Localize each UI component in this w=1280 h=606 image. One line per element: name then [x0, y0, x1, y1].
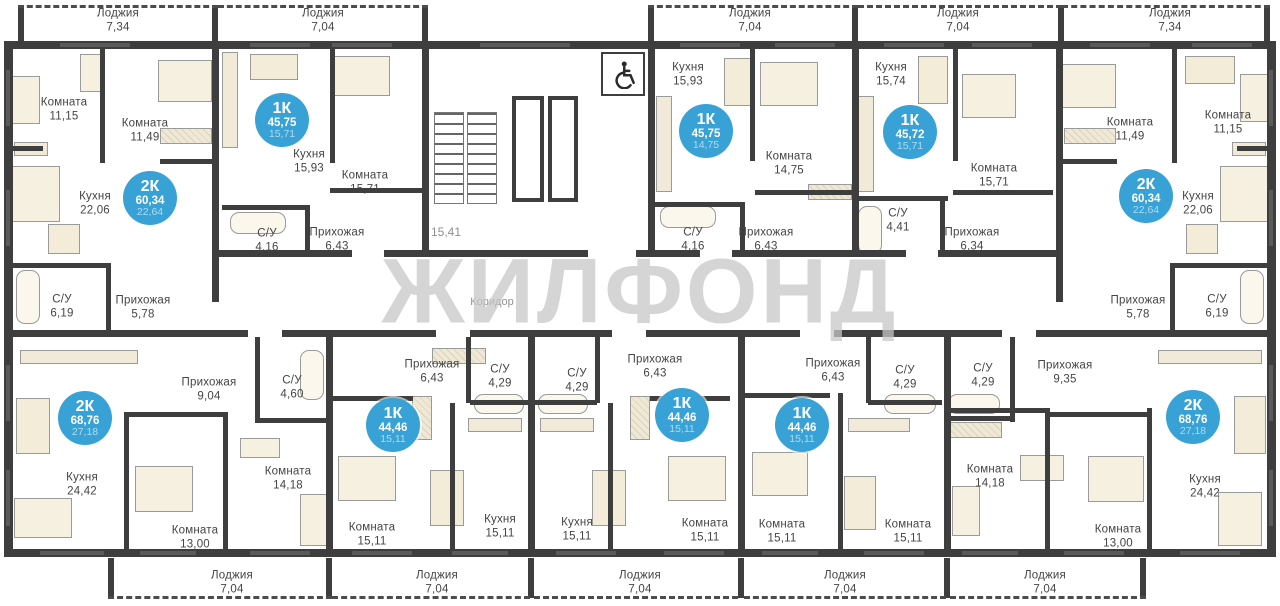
window [884, 43, 944, 47]
room-label-area: 4,29 [893, 378, 916, 392]
wall [608, 403, 613, 549]
room-label: С/У6,19 [50, 294, 73, 321]
window [6, 70, 10, 126]
wall [950, 416, 1012, 421]
bed [158, 60, 212, 102]
room-label-name: Комната [1205, 110, 1251, 122]
room-label: Комната11,15 [41, 97, 87, 124]
counter [20, 350, 138, 364]
room-label-area: 14,18 [967, 477, 1013, 491]
room-label-area: 15,11 [682, 531, 728, 545]
wall [1237, 146, 1267, 151]
room-label: Комната11,15 [1205, 110, 1251, 137]
room-label-area: 13,00 [172, 538, 218, 552]
bed [1088, 456, 1144, 502]
window [250, 551, 310, 555]
wall [1147, 408, 1152, 549]
counter [468, 418, 522, 432]
room-label: С/У4,41 [886, 208, 909, 235]
wall [745, 393, 830, 398]
room-label-area: 22,06 [1182, 204, 1214, 218]
table [250, 54, 298, 80]
apartment-badge[interactable]: 1К45,7514,75 [679, 104, 733, 158]
room-label-name: Комната [172, 525, 218, 537]
apartment-badge[interactable]: 1К45,7515,71 [255, 93, 309, 147]
room-label-area: 4,16 [255, 241, 278, 255]
room-label-area: 6,43 [310, 240, 365, 254]
room-label-area: 4,60 [280, 388, 303, 402]
room-label-name: С/У [973, 363, 992, 375]
window [40, 551, 104, 555]
wall [18, 6, 24, 43]
room-label-area: 5,78 [1111, 308, 1166, 322]
apartment-living-area: 22,64 [137, 207, 163, 218]
wall [108, 558, 114, 598]
wall [1060, 159, 1117, 164]
room-label-name: С/У [257, 228, 276, 240]
apartment-type: 2К [1184, 398, 1203, 414]
loggia-label-area: 7,04 [416, 583, 458, 597]
room-label-name: С/У [490, 364, 509, 376]
wall [1140, 558, 1146, 598]
wall [738, 558, 744, 598]
room-label: Кухня24,42 [1189, 474, 1221, 501]
apartment-badge[interactable]: 1К44,4615,11 [775, 398, 829, 452]
wall [4, 41, 1276, 49]
sofa [12, 166, 60, 222]
room-label: Кухня15,11 [561, 517, 593, 544]
wall [655, 202, 745, 207]
wall [868, 400, 942, 405]
sofa [1220, 166, 1268, 222]
elevator [512, 96, 544, 202]
room-label: Прихожая6,34 [945, 227, 1000, 254]
room-label: Комната15,71 [342, 170, 388, 197]
room-label-area: 14,18 [265, 479, 311, 493]
counter [1158, 350, 1262, 364]
wall [595, 337, 600, 403]
loggia-label-name: Лоджия [619, 570, 661, 582]
loggia-label-area: 7,04 [302, 21, 344, 35]
table [1234, 396, 1266, 454]
apartment-badge[interactable]: 2К68,7627,18 [1166, 390, 1220, 444]
wall [124, 412, 226, 417]
window [6, 470, 10, 526]
room-label: С/У4,16 [681, 227, 704, 254]
apartment-living-area: 15,71 [897, 141, 923, 152]
room-label-name: С/У [683, 227, 702, 239]
room-label-area: 4,16 [681, 240, 704, 254]
room-label-area: 9,04 [182, 390, 237, 404]
window [140, 551, 196, 555]
sofa [1218, 492, 1262, 546]
room-label: Прихожая6,43 [739, 227, 794, 254]
wall [13, 146, 43, 151]
wall [160, 159, 217, 164]
room-label: Прихожая6,43 [628, 354, 683, 381]
window [962, 551, 1018, 555]
wall [212, 257, 219, 305]
wall [944, 558, 950, 598]
wall [953, 190, 1053, 195]
door-opening [436, 330, 470, 337]
room-label-area: 6,43 [806, 371, 861, 385]
room-label-name: Прихожая [628, 354, 683, 366]
wall [106, 263, 111, 330]
loggia-label-name: Лоджия [937, 8, 979, 20]
room-label-area: 15,11 [561, 530, 593, 544]
room-label: Кухня24,42 [66, 472, 98, 499]
apartment-badge[interactable]: 1К44,4615,11 [655, 388, 709, 442]
desk [80, 54, 102, 92]
apartment-badge[interactable]: 2К60,3422,64 [1119, 169, 1173, 223]
room-label-area: 24,42 [1189, 487, 1221, 501]
room-label-area: 4,41 [886, 221, 909, 235]
room-label-name: Кухня [561, 517, 593, 529]
room-label-name: С/У [888, 208, 907, 220]
room-label-name: Комната [265, 466, 311, 478]
room-label: Кухня15,93 [293, 149, 325, 176]
loggia-label-area: 7,34 [1149, 21, 1191, 35]
apartment-total-area: 44,46 [379, 422, 408, 434]
staircase-flight [467, 112, 497, 204]
room-label-name: Кухня [484, 514, 516, 526]
apartment-type: 1К [901, 113, 920, 129]
room-label: Комната14,75 [766, 151, 812, 178]
window [332, 43, 392, 47]
counter [858, 96, 874, 192]
apartment-living-area: 15,11 [380, 434, 406, 445]
wall [212, 49, 219, 257]
apartment-total-area: 68,76 [1179, 414, 1208, 426]
room-label-name: Кухня [672, 62, 704, 74]
wall [212, 6, 218, 43]
room-label: Комната13,00 [172, 525, 218, 552]
counter [222, 52, 238, 148]
room-label-area: 4,29 [971, 376, 994, 390]
room-label-area: 15,11 [349, 535, 395, 549]
room-label-name: Комната [766, 151, 812, 163]
room-label: Комната14,18 [967, 464, 1013, 491]
loggia-label: Лоджия7,04 [416, 570, 458, 597]
loggia-label: Лоджия7,04 [937, 8, 979, 35]
room-label-area: 6,19 [50, 307, 73, 321]
window [1090, 43, 1150, 47]
room-label-area: 15,74 [875, 75, 907, 89]
room-label: Прихожая6,43 [806, 358, 861, 385]
elevator [548, 96, 578, 202]
counter [656, 96, 672, 192]
window [6, 190, 10, 246]
room-label: С/У4,60 [280, 375, 303, 402]
window [352, 551, 412, 555]
door-opening [248, 330, 282, 337]
wall [255, 337, 260, 422]
wall [1264, 6, 1270, 43]
loggia-label-name: Лоджия [729, 8, 771, 20]
wall [1056, 257, 1063, 305]
room-label: С/У4,29 [971, 363, 994, 390]
room-label-area: 14,75 [766, 164, 812, 178]
room-label-name: С/У [567, 368, 586, 380]
room-label-area: 11,15 [41, 110, 87, 124]
bed [760, 62, 818, 106]
table [918, 56, 948, 104]
loggia-label: Лоджия7,34 [97, 8, 139, 35]
room-label-name: Прихожая [116, 295, 171, 307]
apartment-living-area: 15,11 [789, 434, 815, 445]
door-opening [1056, 302, 1063, 330]
room-label-name: Комната [41, 97, 87, 109]
bath [16, 270, 40, 324]
loggia-label: Лоджия7,04 [211, 570, 253, 597]
room-label-name: Кухня [875, 62, 907, 74]
apartment-total-area: 60,34 [1132, 193, 1161, 205]
room-label: Комната15,11 [682, 518, 728, 545]
room-label: Комната14,18 [265, 466, 311, 493]
wall [466, 337, 471, 403]
room-label: Комната15,11 [349, 522, 395, 549]
loggia-label-area: 7,04 [211, 583, 253, 597]
room-label: Прихожая9,04 [182, 377, 237, 404]
door-opening [700, 250, 732, 257]
wall [1045, 408, 1050, 549]
wall [223, 412, 228, 549]
loggia-label: Лоджия7,04 [824, 570, 866, 597]
window [1064, 551, 1124, 555]
bed [752, 452, 808, 496]
loggia-label-area: 7,34 [97, 21, 139, 35]
room-label: Кухня15,93 [672, 62, 704, 89]
loggia-label-area: 7,04 [1024, 583, 1066, 597]
window [250, 43, 310, 47]
counter [848, 418, 910, 432]
bath [1240, 270, 1264, 324]
bath [858, 206, 882, 254]
loggia-label: Лоджия7,04 [619, 570, 661, 597]
door-opening [612, 330, 646, 337]
loggia-label-area: 7,04 [729, 21, 771, 35]
room-label-name: С/У [895, 365, 914, 377]
wall [326, 558, 332, 598]
door-opening [906, 250, 938, 257]
apartment-badge[interactable]: 2К68,7627,18 [58, 391, 112, 445]
loggia-label-name: Лоджия [1149, 8, 1191, 20]
room-label-area: 11,49 [122, 131, 168, 145]
wall [648, 6, 654, 43]
door-opening [212, 302, 219, 330]
apartment-type: 1К [273, 101, 292, 117]
room-label-name: Кухня [66, 472, 98, 484]
room-label-area: 15,93 [672, 75, 704, 89]
wall [1056, 49, 1063, 257]
wall [528, 558, 534, 598]
window [556, 551, 616, 555]
room-label-name: Комната [967, 464, 1013, 476]
room-label-name: Комната [759, 519, 805, 531]
room-label-area: 6,43 [628, 367, 683, 381]
window [664, 551, 724, 555]
room-label: Комната15,71 [971, 163, 1017, 190]
room-label-area: 15,71 [342, 183, 388, 197]
room-label-name: Прихожая [806, 358, 861, 370]
room-label-area: 6,43 [739, 240, 794, 254]
loggia-label-name: Лоджия [416, 570, 458, 582]
loggia-label-area: 7,04 [619, 583, 661, 597]
room-label-area: 4,29 [488, 377, 511, 391]
table [844, 476, 876, 530]
counter [540, 418, 594, 432]
apartment-living-area: 27,18 [72, 427, 98, 438]
room-label-name: Комната [342, 170, 388, 182]
stairwell-area-label: 15,41 [431, 225, 461, 239]
apartment-badge[interactable]: 1К45,7215,71 [883, 105, 937, 159]
wall [528, 337, 535, 549]
bed [12, 76, 40, 124]
apartment-type: 1К [384, 406, 403, 422]
wall [738, 337, 745, 549]
window [480, 43, 570, 47]
window [762, 551, 818, 555]
room-label-name: С/У [282, 375, 301, 387]
wall [422, 6, 428, 43]
room-label-name: Прихожая [310, 227, 365, 239]
room-label: Комната13,00 [1095, 524, 1141, 551]
room-label: С/У6,19 [1205, 294, 1228, 321]
room-label-area: 15,11 [759, 532, 805, 546]
bed [1062, 64, 1116, 108]
room-label: С/У4,29 [893, 365, 916, 392]
window [1269, 470, 1273, 526]
window [6, 365, 10, 421]
room-label-name: Кухня [1182, 191, 1214, 203]
door-opening [800, 330, 834, 337]
room-label: С/У4,16 [255, 228, 278, 255]
table [1186, 224, 1218, 254]
loggia-label: Лоджия7,34 [1149, 8, 1191, 35]
wall [838, 393, 843, 549]
window [1180, 551, 1240, 555]
loggia-label-name: Лоджия [824, 570, 866, 582]
room-label-area: 22,06 [79, 204, 111, 218]
wall [330, 49, 335, 163]
room-label: Комната11,49 [1107, 117, 1153, 144]
desk [1020, 455, 1064, 481]
room-label: Кухня15,11 [484, 514, 516, 541]
room-label-name: Кухня [79, 191, 111, 203]
wall [124, 412, 129, 549]
wheelchair-icon [601, 52, 645, 96]
room-label-area: 6,19 [1205, 307, 1228, 321]
room-label-area: 11,49 [1107, 130, 1153, 144]
loggia-label-name: Лоджия [302, 8, 344, 20]
wall [852, 6, 858, 43]
wall [470, 400, 530, 405]
room-label-name: Комната [1095, 524, 1141, 536]
apartment-total-area: 45,72 [896, 129, 925, 141]
room-label: С/У4,29 [565, 368, 588, 395]
table [16, 398, 50, 454]
wall [100, 49, 105, 163]
apartment-living-area: 22,64 [1133, 205, 1159, 216]
loggia-label-name: Лоджия [97, 8, 139, 20]
apartment-type: 1К [793, 406, 812, 422]
wardrobe [950, 422, 1002, 438]
apartment-badge[interactable]: 2К60,3422,64 [123, 171, 177, 225]
wall [450, 403, 455, 549]
room-label-name: Прихожая [1111, 295, 1166, 307]
bed [135, 466, 193, 512]
apartment-total-area: 44,46 [668, 412, 697, 424]
apartment-badge[interactable]: 1К44,4615,11 [366, 398, 420, 452]
window [864, 551, 924, 555]
room-label-area: 6,43 [405, 372, 460, 386]
room-label-area: 15,71 [971, 176, 1017, 190]
apartment-total-area: 45,75 [692, 128, 721, 140]
apartment-living-area: 15,71 [269, 129, 295, 140]
room-label-area: 15,11 [885, 532, 931, 546]
room-label-name: Кухня [1189, 474, 1221, 486]
wall [852, 49, 859, 257]
loggia-label-area: 7,04 [824, 583, 866, 597]
room-label: Прихожая6,43 [310, 227, 365, 254]
loggia-label-name: Лоджия [211, 570, 253, 582]
room-label-area: 15,11 [484, 527, 516, 541]
table [48, 224, 80, 254]
apartment-type: 2К [1137, 177, 1156, 193]
room-label-name: С/У [1207, 294, 1226, 306]
wall [1170, 263, 1175, 330]
wall [326, 337, 333, 549]
room-label: Прихожая9,35 [1038, 360, 1093, 387]
apartment-type: 2К [76, 399, 95, 415]
room-label-area: 24,42 [66, 485, 98, 499]
table [1185, 56, 1235, 84]
bath [300, 350, 324, 400]
room-label: С/У4,29 [488, 364, 511, 391]
wall [422, 49, 429, 257]
bed [338, 456, 396, 501]
wall [222, 205, 310, 210]
staircase-flight [434, 112, 464, 204]
loggia-label: Лоджия7,04 [1024, 570, 1066, 597]
floor-plan: ЖИЛФОНД Коридор 15,41 2К60,3422,64Комнат… [0, 0, 1280, 606]
room-label-name: Прихожая [945, 227, 1000, 239]
loggia-label-area: 7,04 [937, 21, 979, 35]
room-label: Прихожая5,78 [116, 295, 171, 322]
room-label-name: Комната [122, 118, 168, 130]
door-opening [1002, 330, 1036, 337]
room-label: Кухня22,06 [79, 191, 111, 218]
wall [255, 418, 328, 423]
desk [240, 438, 280, 458]
room-label-name: Прихожая [739, 227, 794, 239]
wall [1058, 6, 1064, 43]
apartment-total-area: 44,46 [788, 422, 817, 434]
bed [332, 56, 390, 96]
room-label: Кухня22,06 [1182, 191, 1214, 218]
wall [648, 49, 655, 257]
room-label-name: Комната [885, 519, 931, 531]
room-label-area: 6,34 [945, 240, 1000, 254]
apartment-type: 1К [673, 396, 692, 412]
bed [668, 456, 726, 501]
room-label: Прихожая6,43 [405, 359, 460, 386]
wall [533, 400, 597, 405]
room-label-area: 13,00 [1095, 537, 1141, 551]
room-label-name: Кухня [293, 149, 325, 161]
apartment-living-area: 14,75 [693, 140, 719, 151]
